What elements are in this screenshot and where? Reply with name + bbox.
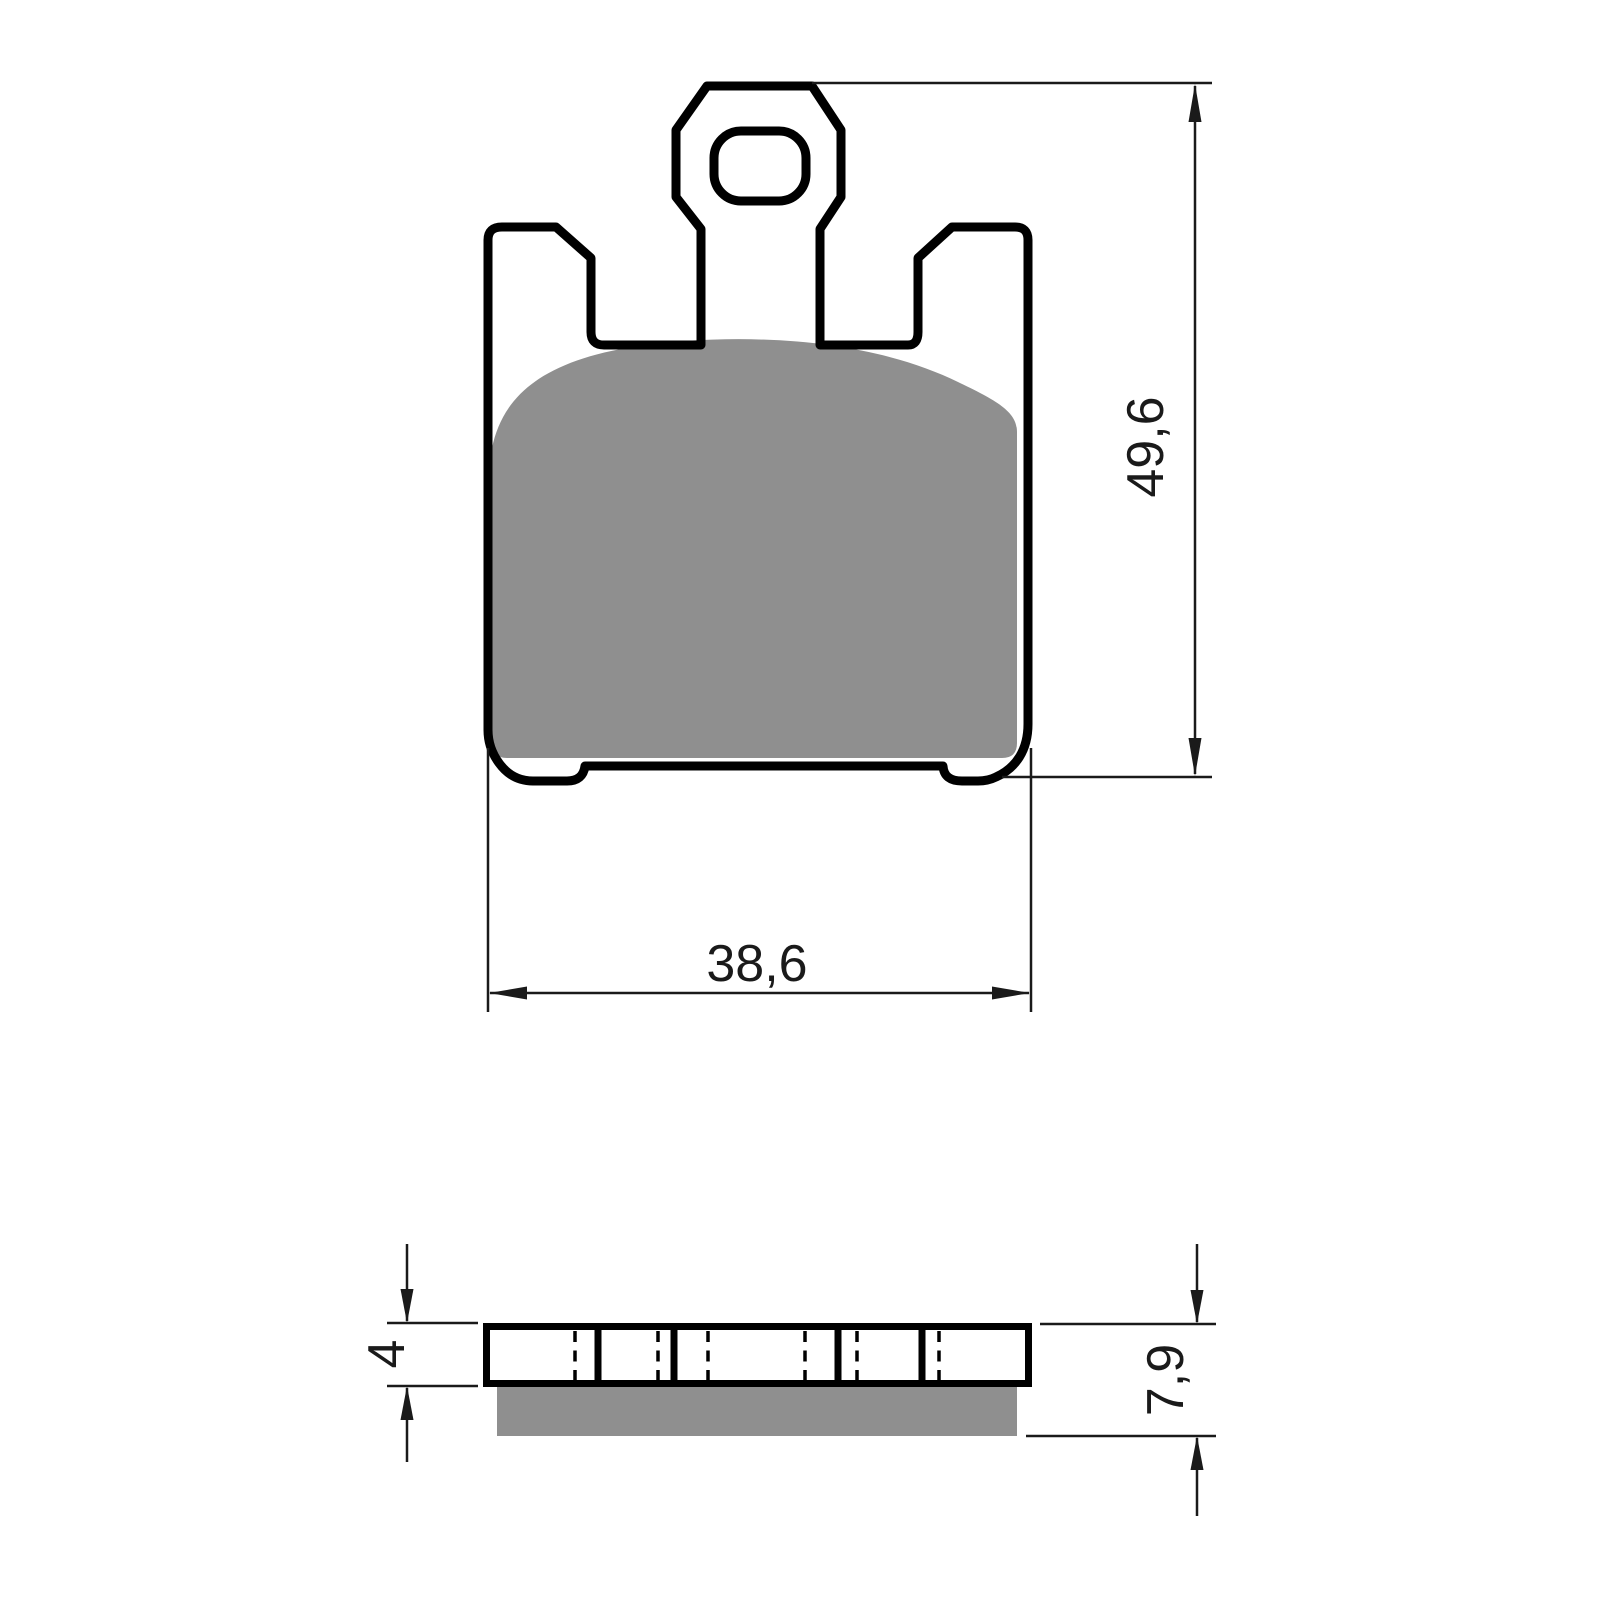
backplate-side <box>487 1327 1029 1384</box>
width-arrow-left <box>489 987 527 1000</box>
tab-hole <box>714 131 806 201</box>
front-view: 49,6 38,6 <box>488 83 1212 1012</box>
plate-thickness-label: 4 <box>358 1340 416 1369</box>
side-view: 4 7,9 <box>358 1244 1216 1516</box>
total-thickness-label: 7,9 <box>1137 1344 1195 1416</box>
width-dimension-label: 38,6 <box>706 935 807 993</box>
height-arrow-up <box>1189 84 1202 122</box>
plate-arrow-bottom <box>401 1386 414 1420</box>
technical-drawing: 49,6 38,6 <box>0 0 1600 1600</box>
width-dimension: 38,6 <box>488 748 1031 1012</box>
height-dimension-label: 49,6 <box>1117 396 1175 497</box>
total-arrow-bottom <box>1191 1436 1204 1470</box>
friction-material-front <box>492 339 1017 758</box>
plate-thickness-dimension: 4 <box>358 1244 478 1462</box>
total-arrow-top <box>1191 1290 1204 1324</box>
friction-material-side <box>497 1387 1017 1436</box>
height-arrow-down <box>1189 738 1202 776</box>
plate-arrow-top <box>401 1289 414 1323</box>
total-thickness-dimension: 7,9 <box>1026 1244 1216 1516</box>
width-arrow-right <box>992 987 1030 1000</box>
